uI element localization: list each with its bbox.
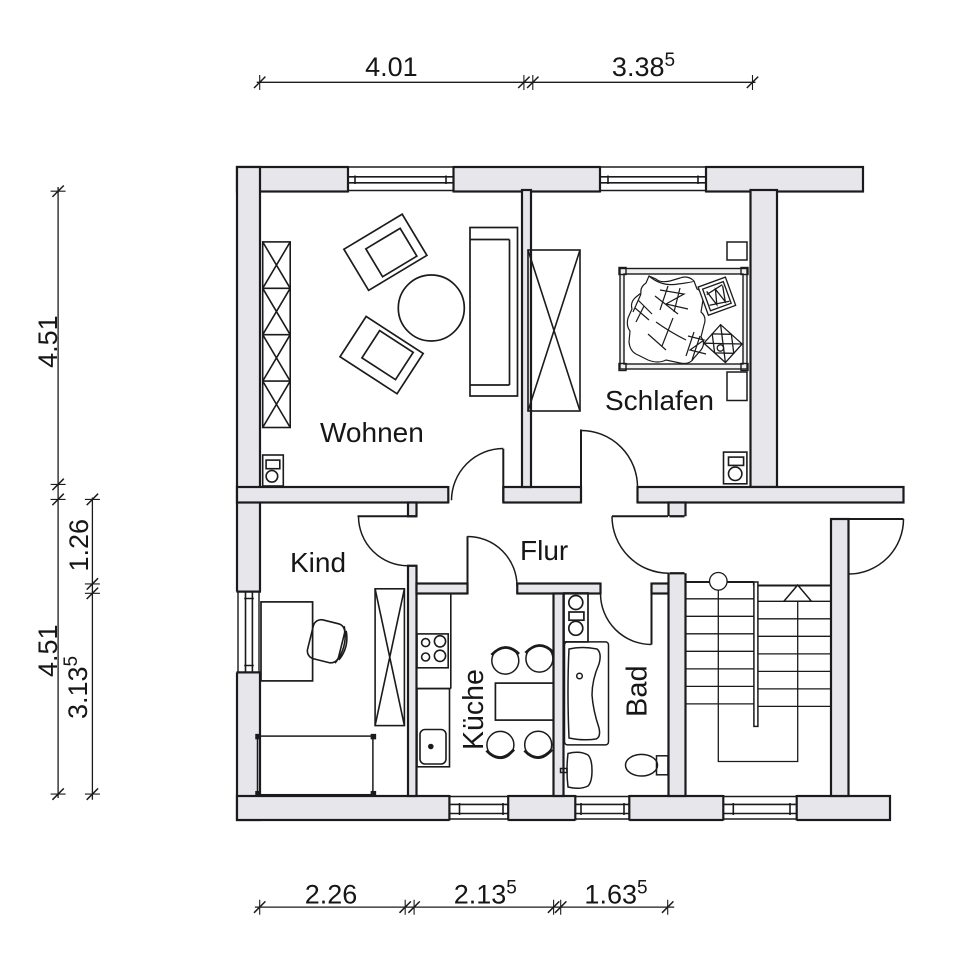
svg-text:Küche: Küche — [458, 669, 490, 750]
svg-text:4.01: 4.01 — [365, 52, 418, 82]
svg-text:Kind: Kind — [290, 547, 346, 578]
svg-text:Schlafen: Schlafen — [605, 385, 714, 416]
svg-text:4.51: 4.51 — [33, 624, 63, 677]
svg-text:4.51: 4.51 — [33, 315, 63, 368]
svg-text:Flur: Flur — [520, 535, 568, 566]
svg-text:1.26: 1.26 — [64, 519, 94, 572]
svg-text:Bad: Bad — [622, 665, 654, 717]
svg-text:2.26: 2.26 — [305, 880, 358, 910]
svg-text:Wohnen: Wohnen — [320, 417, 424, 448]
